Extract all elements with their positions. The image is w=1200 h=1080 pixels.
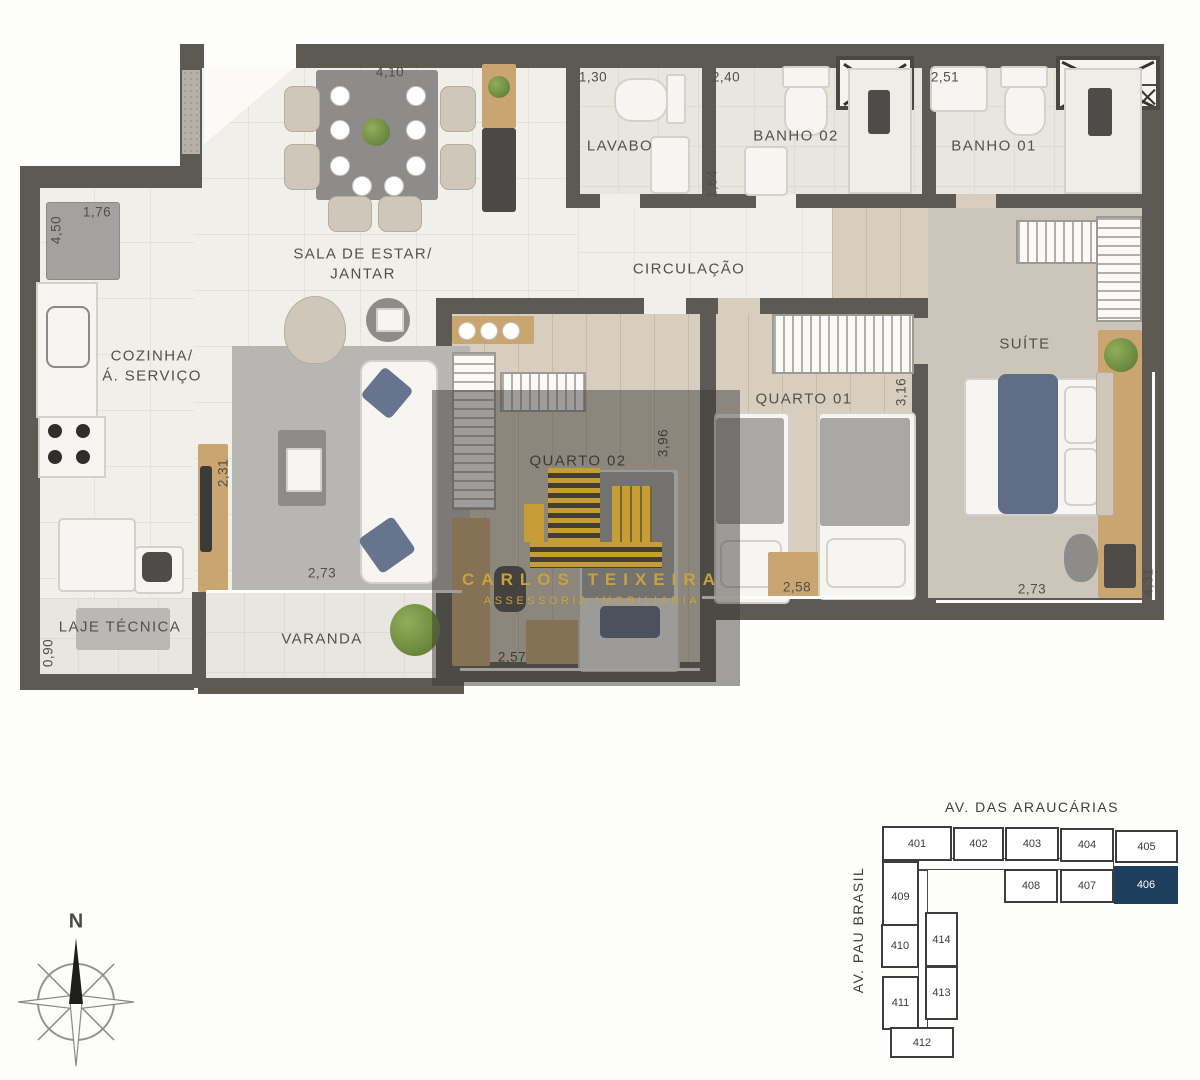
suite-throw: [998, 374, 1058, 514]
keyplan-unit-414: 414: [925, 912, 958, 967]
dim-quarto01-bottom: 2,58: [783, 580, 811, 595]
dinner-plate: [330, 156, 350, 176]
quarto02-door-gap: [644, 298, 686, 314]
banho01-toilet-tank: [1000, 66, 1048, 88]
wall-kitchen-top: [20, 166, 194, 188]
keyplan-unit-408: 408: [1004, 869, 1058, 903]
dim-laje-side: 0,90: [41, 639, 56, 667]
room-label-sala-line1: SALA DE ESTAR/: [293, 245, 432, 265]
keyplan-unit-405: 405: [1115, 830, 1178, 863]
room-label-laje: LAJE TÉCNICA: [59, 617, 181, 637]
keyplan-street-left: AV. PAU BRASIL: [850, 867, 866, 994]
keyplan-unit-401: 401: [882, 826, 952, 861]
quarto01-pillow-right: [826, 538, 906, 588]
dim-kitchen-left: 4,50: [49, 216, 64, 244]
quarto01-blanket-right: [820, 418, 910, 526]
wall-bathrooms-bottom: [566, 194, 1164, 208]
side-table-tray: [376, 308, 404, 332]
tv-screen: [200, 466, 212, 552]
suite-closet-side: [1096, 216, 1142, 322]
kitchen-sink: [46, 306, 90, 368]
stove-burner: [76, 424, 90, 438]
entrance-door-leaf: [204, 68, 294, 144]
keyplan-unit-402: 402: [953, 827, 1004, 861]
room-label-suite: SUÍTE: [999, 334, 1050, 354]
lavabo-toilet-tank: [666, 74, 686, 124]
stove-burner: [76, 450, 90, 464]
stove-burner: [48, 424, 62, 438]
dim-dining-top: 4,10: [376, 65, 404, 80]
floor-circulacao: [578, 196, 832, 314]
dim-living-bottom: 2,73: [308, 566, 336, 581]
floor-corridor-wood: [832, 196, 928, 314]
buffet-plate: [480, 322, 498, 340]
banho01-door-gap: [956, 194, 996, 208]
banho02-shower-column: [868, 90, 890, 134]
keyplan-unit-403: 403: [1005, 827, 1059, 861]
banho01-shower-column: [1088, 88, 1112, 136]
dinner-plate: [406, 86, 426, 106]
wall-laje-varanda: [192, 592, 206, 688]
dining-chair: [378, 196, 422, 232]
suite-headboard: [1096, 372, 1114, 516]
keyplan-unit-411: 411: [882, 976, 919, 1030]
keyplan-unit-406-highlighted: 406: [1114, 866, 1178, 904]
keyplan-unit-407: 407: [1060, 869, 1114, 903]
wall-laje-bottom: [28, 674, 194, 690]
watermark-brand-text: CARLOS TEIXEIRA: [462, 570, 722, 590]
dining-chair: [284, 144, 320, 190]
dim-quarto01-side: 3,16: [894, 378, 909, 406]
wall-lavabo-left: [566, 66, 580, 208]
coffee-table-tray: [286, 448, 322, 492]
room-label-banho02: BANHO 02: [753, 126, 838, 146]
room-label-sala-line2: JANTAR: [293, 264, 432, 284]
lavabo-sink: [650, 136, 690, 194]
dinner-plate: [384, 176, 404, 196]
quarto01-wardrobe: [772, 314, 914, 374]
room-label-lavabo: LAVABO: [587, 136, 653, 156]
dim-lavabo-top: 1,30: [579, 70, 607, 85]
banho01-toilet: [1004, 82, 1046, 136]
buffet-plate: [458, 322, 476, 340]
dinner-plate: [406, 156, 426, 176]
dim-line-suite: [936, 600, 1142, 603]
washer: [58, 518, 136, 592]
dim-suite-side: 4,31: [1141, 568, 1156, 596]
stove-burner: [48, 450, 62, 464]
watermark-tagline-text: ASSESSORIA IMOBILIARIA: [484, 595, 700, 607]
dim-line-living: [206, 590, 462, 593]
suite-stool: [1064, 534, 1098, 582]
room-label-sala: SALA DE ESTAR/ JANTAR: [293, 245, 432, 284]
dim-lavabo-side: 1,64: [705, 170, 720, 198]
wall-left-outer: [20, 166, 40, 690]
wall-varanda-rail: [198, 678, 464, 694]
room-label-cozinha: COZINHA/ Á. SERVIÇO: [102, 347, 202, 386]
dining-chair: [440, 144, 476, 190]
dining-chair: [440, 86, 476, 132]
keyplan-unit-413: 413: [925, 966, 958, 1020]
keyplan-unit-410: 410: [881, 924, 919, 968]
room-label-cozinha-line1: COZINHA/: [102, 347, 202, 367]
armchair: [284, 296, 346, 364]
dim-tv-wall: 2,31: [216, 459, 231, 487]
dinner-plate: [352, 176, 372, 196]
sideboard-plant: [488, 76, 510, 98]
kettle: [142, 552, 172, 582]
sideboard-cabinet: [482, 128, 516, 212]
entry-stone-finish: [182, 70, 200, 154]
buffet-plate: [502, 322, 520, 340]
lavabo-toilet: [614, 78, 668, 122]
wall-top: [180, 44, 1164, 68]
floorplan-page: SALA DE ESTAR/ JANTAR COZINHA/ Á. SERVIÇ…: [0, 0, 1200, 1080]
compass-north-label: N: [69, 911, 83, 934]
banho02-door-gap: [756, 194, 796, 208]
dim-banho01-top: 2,51: [931, 70, 959, 85]
stove: [38, 416, 106, 478]
quarto01-door-gap: [718, 298, 760, 314]
keyplan-unit-409: 409: [882, 861, 919, 933]
room-label-quarto01: QUARTO 01: [755, 389, 852, 409]
watermark-logo-tower-small: [524, 504, 544, 542]
suite-closet-top: [1016, 220, 1104, 264]
dim-kitchen-top: 1,76: [83, 205, 111, 220]
dinner-plate: [330, 120, 350, 140]
table-centerpiece-plant: [362, 118, 390, 146]
dining-chair: [284, 86, 320, 132]
suite-pillow: [1064, 386, 1098, 444]
lavabo-door-gap: [600, 194, 640, 208]
dining-chair: [328, 196, 372, 232]
keyplan-unit-404: 404: [1060, 828, 1114, 862]
room-label-circulacao: CIRCULAÇÃO: [633, 259, 745, 279]
dinner-plate: [406, 120, 426, 140]
keyplan-unit-412: 412: [890, 1027, 954, 1058]
room-label-varanda: VARANDA: [281, 629, 362, 649]
entrance-door-gap: [204, 44, 296, 68]
suite-desk-item: [1104, 544, 1136, 588]
banho02-sink: [744, 146, 788, 196]
dim-suite-bottom: 2,73: [1018, 582, 1046, 597]
suite-pillow: [1064, 448, 1098, 506]
suite-door-gap: [912, 318, 928, 364]
room-label-banho01: BANHO 01: [951, 136, 1036, 156]
compass-rose: [12, 934, 142, 1070]
watermark-logo-base: [530, 542, 662, 568]
suite-plant: [1104, 338, 1138, 372]
dim-line-suite-side: [1152, 372, 1155, 600]
dinner-plate: [330, 86, 350, 106]
room-label-cozinha-line2: Á. SERVIÇO: [102, 366, 202, 386]
keyplan-street-top: AV. DAS ARAUCÁRIAS: [945, 799, 1119, 815]
banho02-toilet-tank: [782, 66, 830, 88]
dim-banho02-top: 2,40: [712, 70, 740, 85]
